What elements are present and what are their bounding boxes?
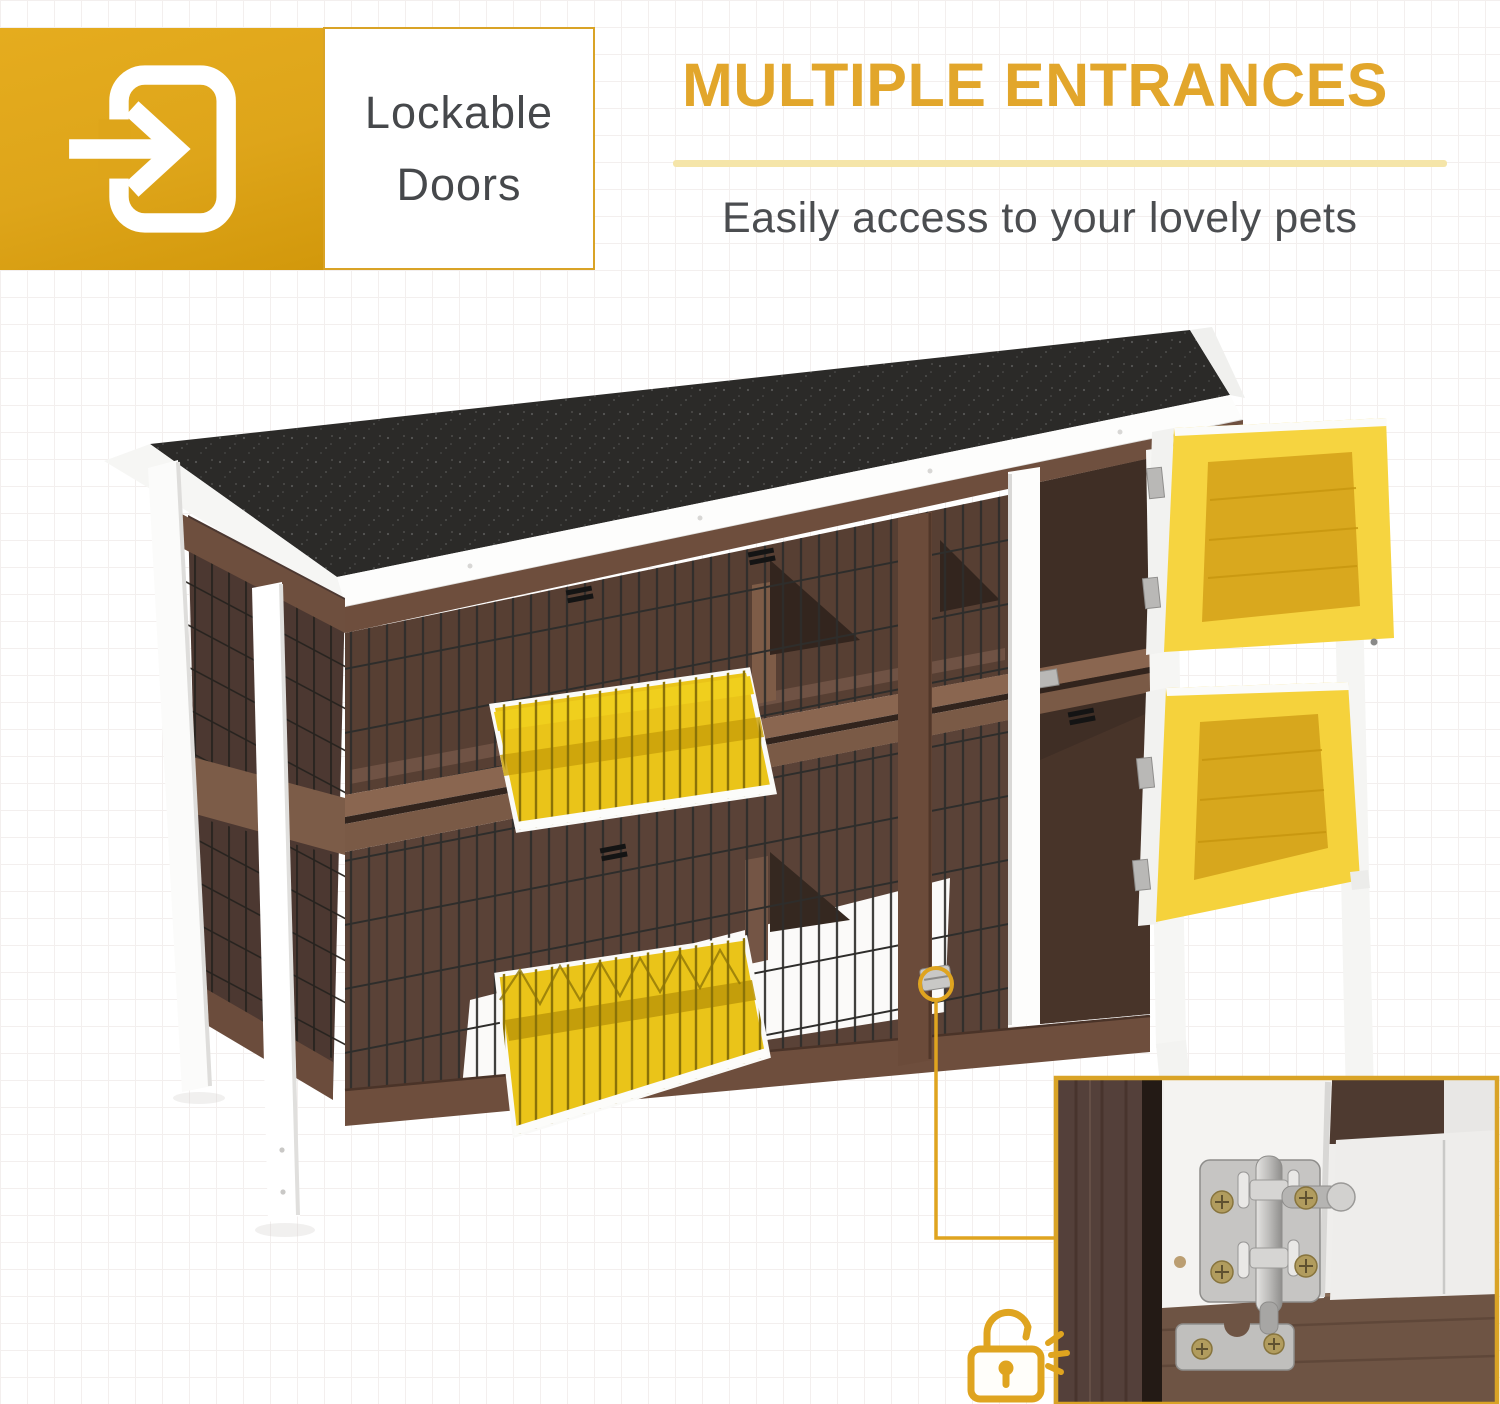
feature-badge-icon-box xyxy=(0,28,323,270)
badge-label-line2: Doors xyxy=(396,149,521,221)
latch-inset xyxy=(1056,1078,1497,1404)
door-enter-arrow-icon xyxy=(69,64,254,234)
page-subtitle: Easily access to your lovely pets xyxy=(722,192,1358,244)
open-door-lower xyxy=(1132,682,1370,926)
page-title: MULTIPLE ENTRANCES xyxy=(682,47,1388,123)
open-padlock-icon xyxy=(971,1312,1067,1399)
open-door-upper xyxy=(1142,418,1394,655)
badge-label-line1: Lockable xyxy=(365,77,553,149)
feature-badge-label: Lockable Doors xyxy=(323,27,595,270)
title-underline xyxy=(673,160,1447,167)
product-infographic: Lockable Doors MULTIPLE ENTRANCES Easily… xyxy=(0,0,1500,1404)
open-flap-lower xyxy=(497,938,768,1135)
